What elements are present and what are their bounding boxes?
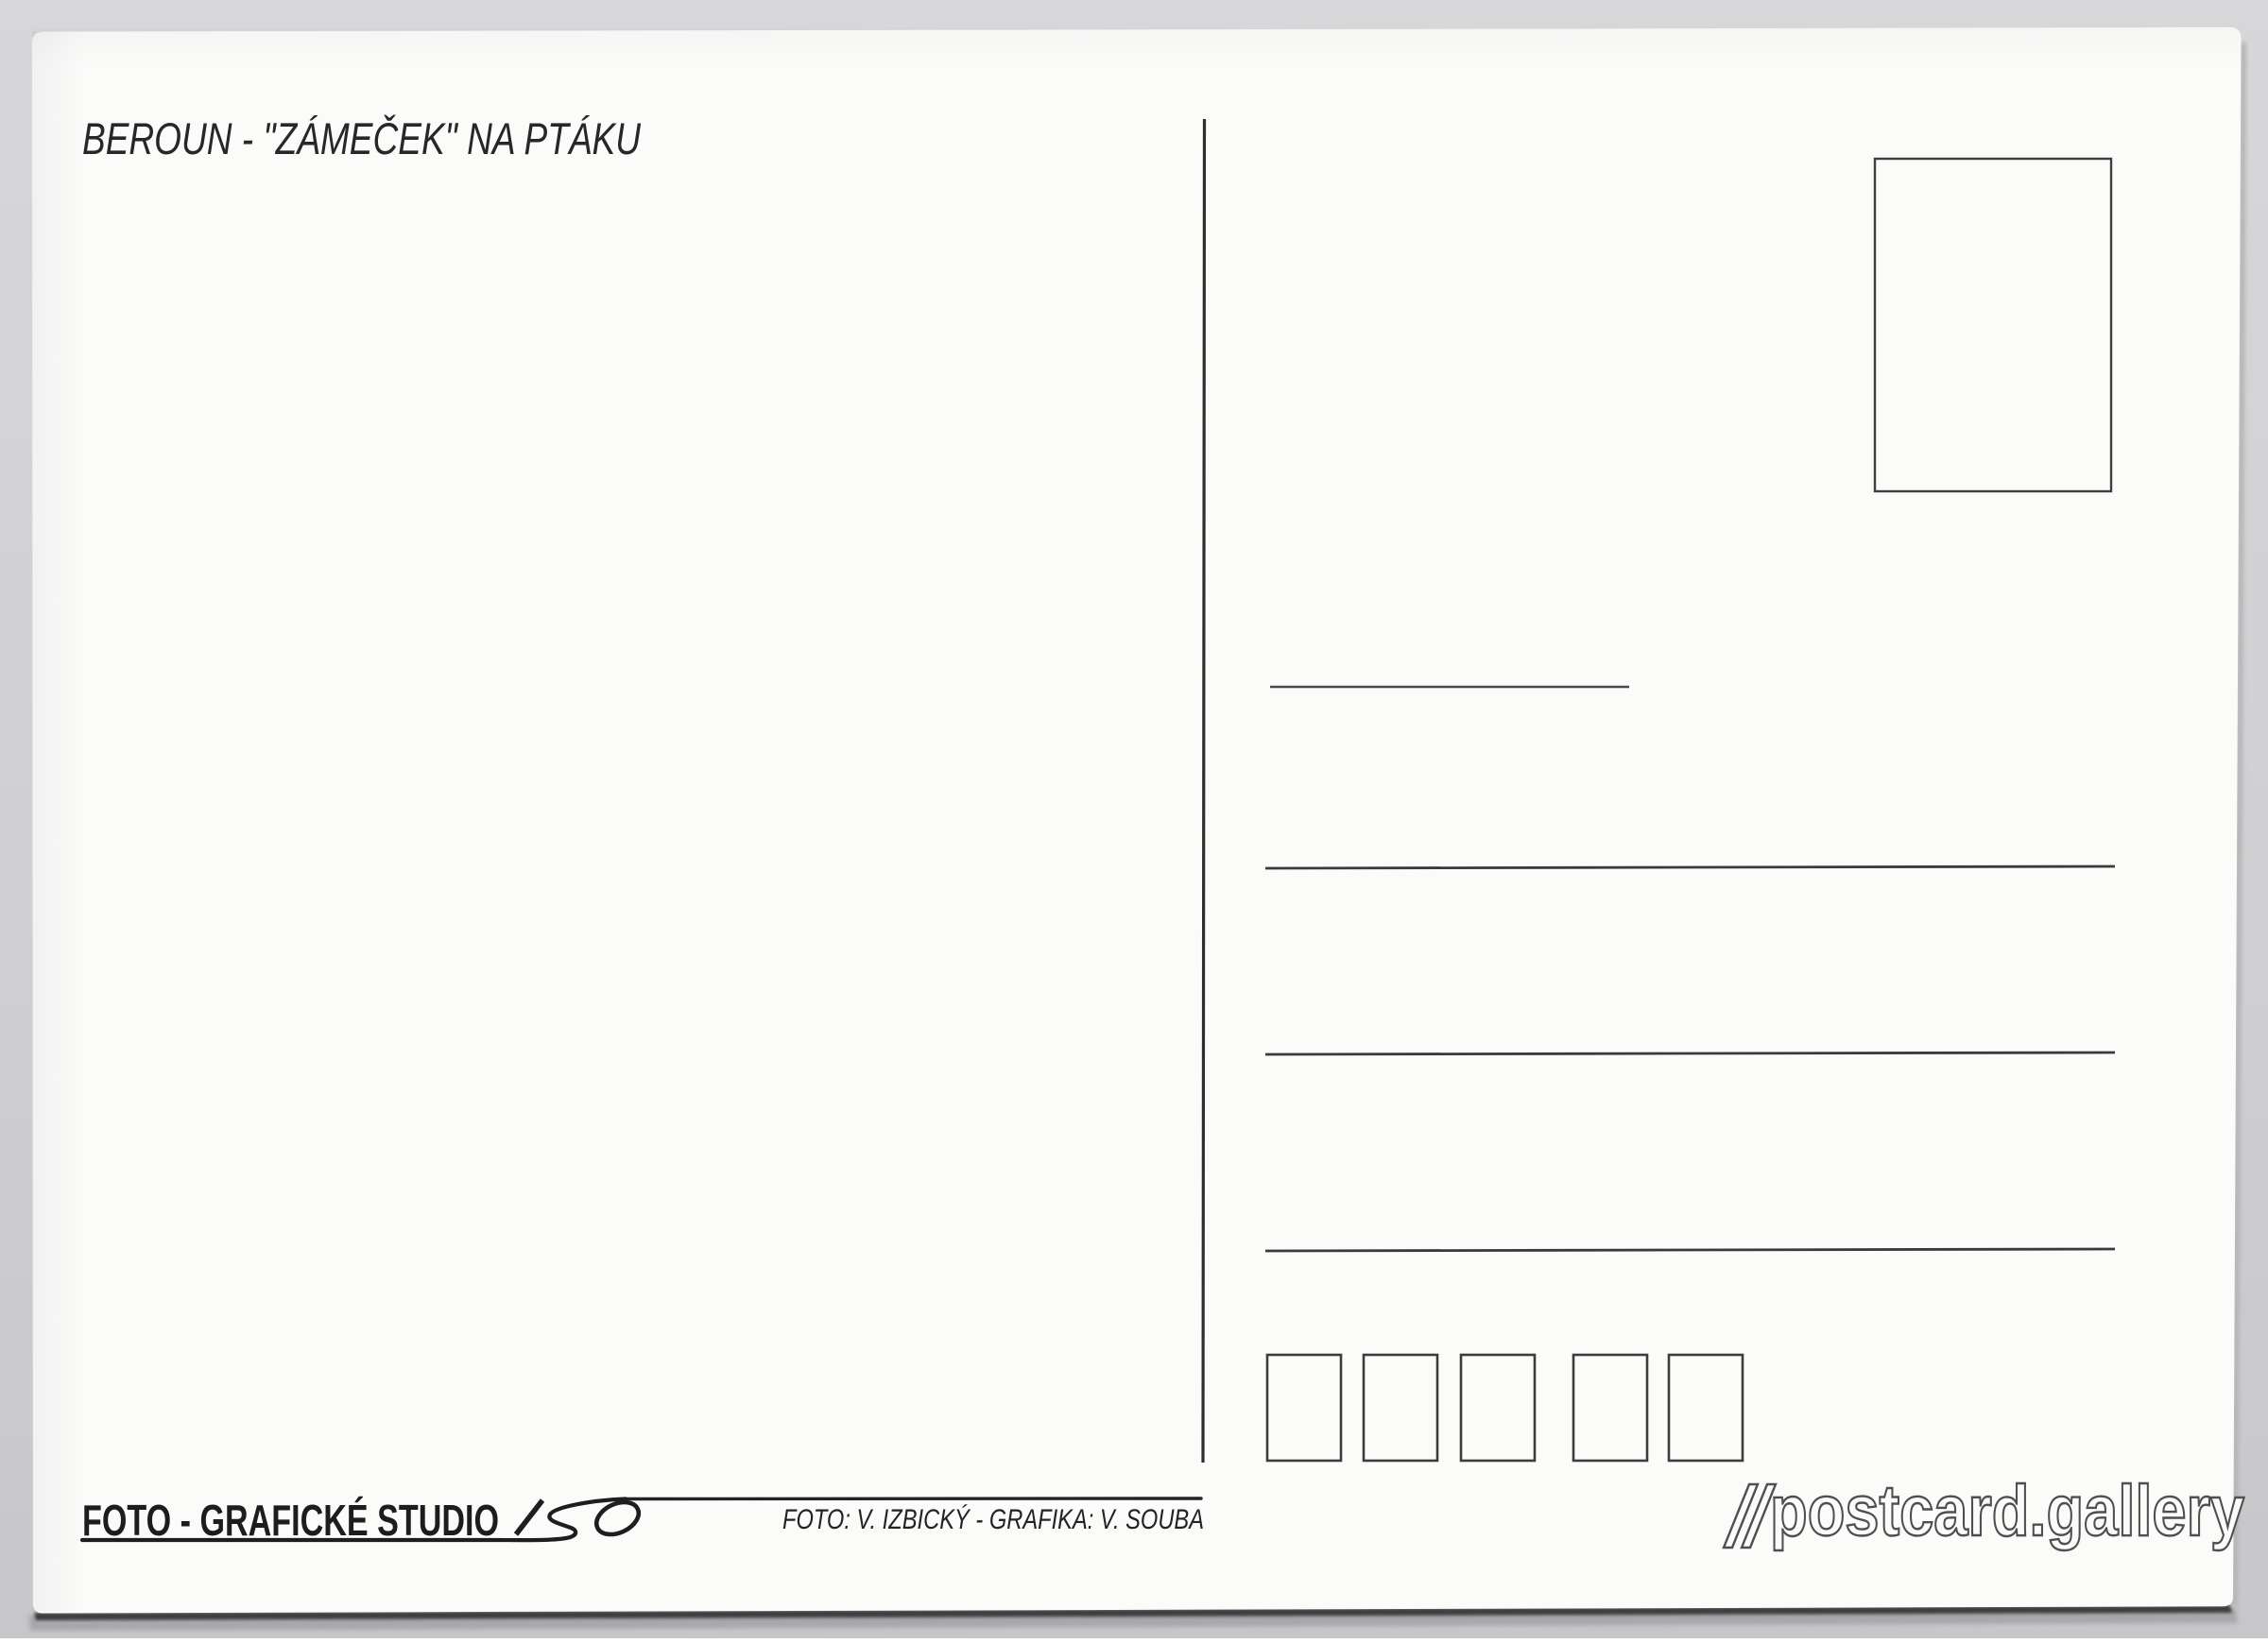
svg-text:BEROUN - "ZÁMEČEK" NA PTÁKU: BEROUN - "ZÁMEČEK" NA PTÁKU	[82, 113, 642, 163]
svg-text:FOTO: V. IZBICKÝ - GRAFIKA: V: FOTO: V. IZBICKÝ - GRAFIKA: V. SOUBA	[782, 1504, 1204, 1535]
svg-text:FOTO - GRAFICKÉ STUDIO: FOTO - GRAFICKÉ STUDIO	[82, 1496, 499, 1545]
svg-text:postcard.gallery: postcard.gallery	[1770, 1471, 2244, 1551]
